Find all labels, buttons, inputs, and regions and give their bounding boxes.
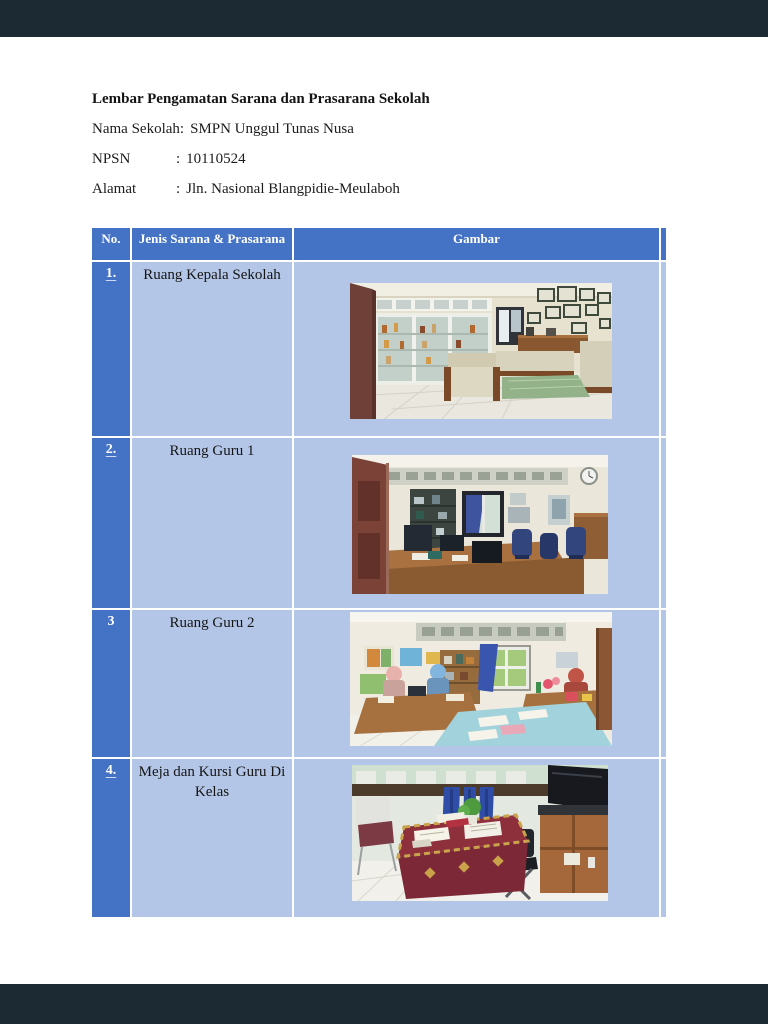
- info-separator: :: [180, 121, 184, 138]
- row-2-photo-cell: [294, 438, 659, 608]
- row-1-number: 1.: [92, 262, 130, 436]
- info-value: 10110524: [186, 151, 245, 168]
- viewer-top-bar: [0, 0, 768, 37]
- row-3-name: Ruang Guru 2: [132, 610, 292, 757]
- row-2-number: 2.: [92, 438, 130, 608]
- row-1-photo-cell: [294, 262, 659, 436]
- info-label: NPSN: [92, 151, 176, 168]
- row-4-name: Meja dan Kursi Guru Di Kelas: [132, 759, 292, 917]
- row-4-spacer: [661, 759, 666, 917]
- document-viewer-page: Lembar Pengamatan Sarana dan Prasarana S…: [0, 0, 768, 1024]
- row-1-name: Ruang Kepala Sekolah: [132, 262, 292, 436]
- col-header-gambar: Gambar: [294, 228, 659, 260]
- info-line-npsn: NPSN : 10110524: [92, 151, 246, 168]
- photo-meja-kursi-guru: [352, 765, 608, 901]
- info-label: Alamat: [92, 181, 176, 198]
- info-line-nama-sekolah: Nama Sekolah : SMPN Unggul Tunas Nusa: [92, 121, 354, 138]
- info-line-alamat: Alamat : Jln. Nasional Blangpidie-Meulab…: [92, 181, 400, 198]
- info-separator: :: [176, 151, 180, 168]
- info-value: Jln. Nasional Blangpidie-Meulaboh: [186, 181, 400, 198]
- facilities-table: No. Jenis Sarana & Prasarana Gambar 1. R…: [92, 228, 666, 917]
- info-value: SMPN Unggul Tunas Nusa: [190, 121, 354, 138]
- row-4-number: 4.: [92, 759, 130, 917]
- info-label: Nama Sekolah: [92, 121, 180, 138]
- row-3-spacer: [661, 610, 666, 757]
- col-header-no: No.: [92, 228, 130, 260]
- viewer-bottom-bar: [0, 984, 768, 1024]
- photo-ruang-kepala-sekolah: [350, 283, 612, 419]
- row-2-name: Ruang Guru 1: [132, 438, 292, 608]
- photo-ruang-guru-2: [350, 612, 612, 746]
- col-header-jenis: Jenis Sarana & Prasarana: [132, 228, 292, 260]
- info-separator: :: [176, 181, 180, 198]
- photo-ruang-guru-1: [352, 455, 608, 594]
- col-header-spacer: [661, 228, 666, 260]
- row-3-photo-cell: [294, 610, 659, 757]
- page-title: Lembar Pengamatan Sarana dan Prasarana S…: [92, 91, 430, 108]
- row-3-number: 3: [92, 610, 130, 757]
- row-2-spacer: [661, 438, 666, 608]
- row-1-spacer: [661, 262, 666, 436]
- row-4-photo-cell: [294, 759, 659, 917]
